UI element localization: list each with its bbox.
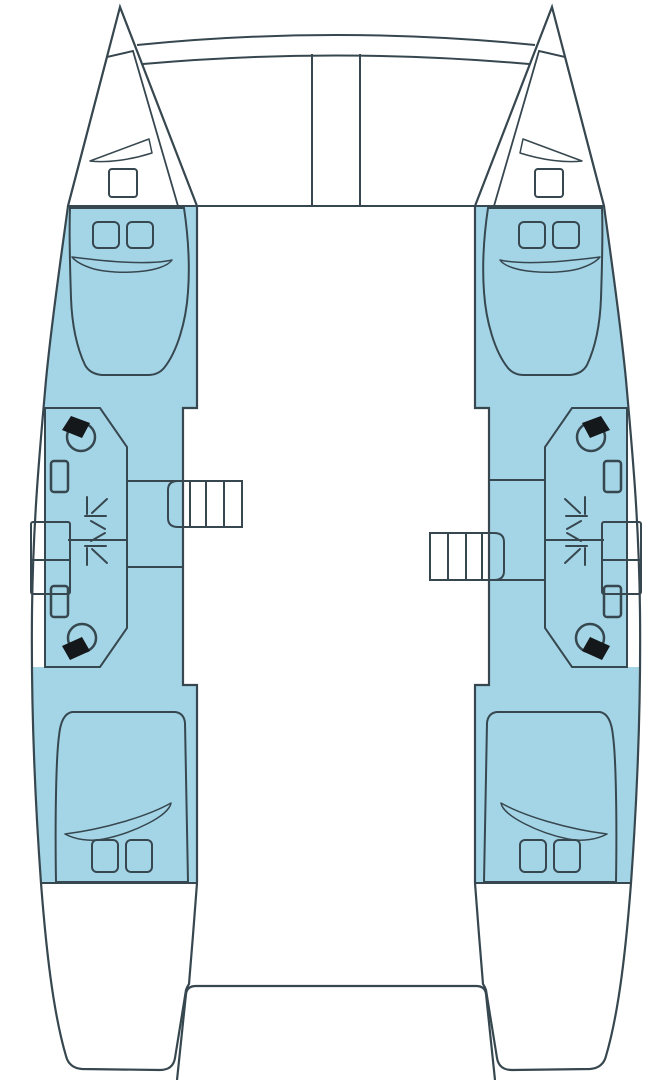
forward-crossbeam-rear-edge [143,56,529,65]
bow-vent-hatch-icon [90,139,152,162]
bow-chainplate-line [107,51,133,57]
trampoline-center-walkway [312,54,360,206]
forward-crossbeam-front-edge [137,35,535,45]
hull-starboard [475,7,642,1070]
stair-treads [190,482,224,526]
boat-plan-canvas [0,0,652,1080]
bow-deck-hatch-icon [109,169,137,197]
foredeck-locker [68,51,178,206]
hull-port [30,7,197,1070]
aft-cockpit-platform [177,986,495,1080]
catamaran-floor-plan [0,0,652,1080]
stair-treads [448,534,482,579]
bow-structure [68,35,604,206]
